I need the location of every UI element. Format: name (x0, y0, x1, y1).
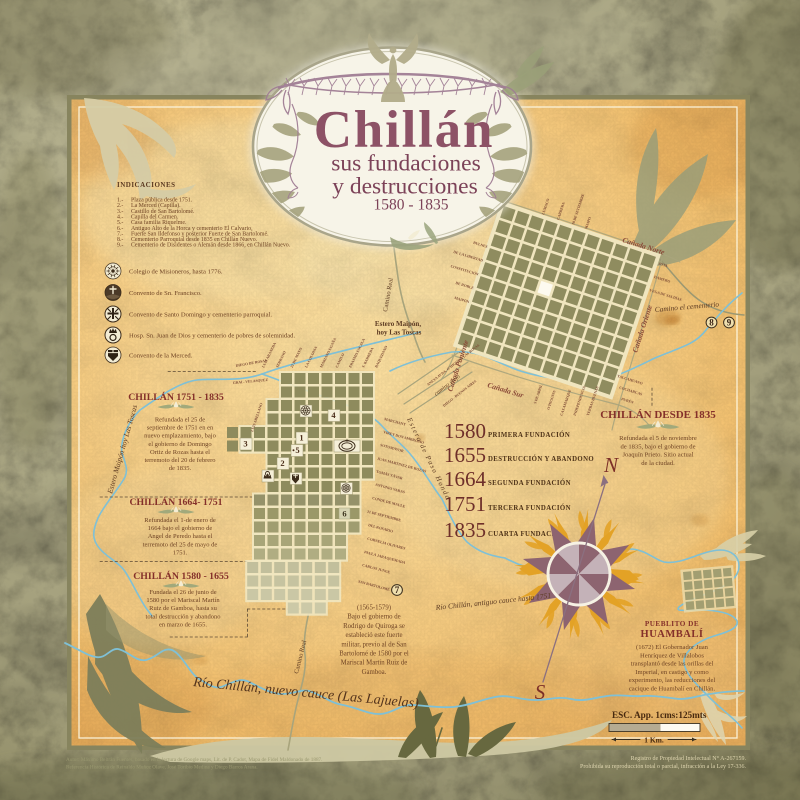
svg-text:en marzo de 1655.: en marzo de 1655. (159, 621, 207, 628)
svg-text:1580: 1580 (444, 419, 486, 443)
svg-text:CHILLÁN 1664- 1751: CHILLÁN 1664- 1751 (129, 496, 222, 508)
svg-text:militar, previo al de San: militar, previo al de San (341, 641, 407, 648)
svg-text:1664: 1664 (444, 467, 487, 491)
svg-text:1664 bajo el gobierno de: 1664 bajo el gobierno de (148, 525, 213, 532)
svg-text:Convento de la Merced.: Convento de la Merced. (129, 352, 193, 359)
svg-text:Estero Maipón,: Estero Maipón, (375, 320, 421, 328)
svg-text:Convento de Santo Domingo y ce: Convento de Santo Domingo y cementerio p… (129, 311, 272, 318)
svg-text:Gamboa.: Gamboa. (362, 669, 387, 676)
svg-text:INDICACIONES: INDICACIONES (117, 181, 176, 189)
svg-text:experimento, las reducciones d: experimento, las reducciones del (629, 677, 716, 684)
svg-text:septiembre de 1751 en en: septiembre de 1751 en en (147, 425, 214, 432)
svg-text:Angel de Peredo hasta el: Angel de Peredo hasta el (148, 533, 213, 540)
svg-text:PRIMERA FUNDACIÓN: PRIMERA FUNDACIÓN (488, 431, 570, 439)
svg-text:Ortiz de Rozas hasta el: Ortiz de Rozas hasta el (150, 449, 210, 456)
svg-text:N: N (603, 453, 619, 477)
svg-text:estableció este fuerte: estableció este fuerte (346, 632, 403, 639)
svg-text:Colegio de Misioneros, hasta 1: Colegio de Misioneros, hasta 1776. (129, 268, 223, 275)
svg-text:Cementerio de Disidentes o Ale: Cementerio de Disidentes o Alemán desde … (131, 243, 291, 249)
svg-text:1835: 1835 (444, 518, 486, 542)
svg-text:5: 5 (295, 445, 299, 455)
svg-text:ESC. App. 1cms:125mts: ESC. App. 1cms:125mts (612, 710, 707, 720)
svg-text:1: 1 (299, 433, 303, 443)
svg-text:1 Km.: 1 Km. (644, 736, 664, 745)
svg-text:de 1835, bajo el gobierno de: de 1835, bajo el gobierno de (620, 443, 695, 450)
svg-text:Referencia Histórica de Reinal: Referencia Histórica de Reinaldo Muñoz O… (66, 764, 258, 771)
svg-text:Registro de Propiedad Intelect: Registro de Propiedad Intelectual N° A-2… (631, 755, 747, 762)
svg-text:Refundada el 25 de: Refundada el 25 de (155, 417, 205, 424)
svg-text:(1565-1579): (1565-1579) (357, 605, 391, 612)
svg-text:Bartolomé de 1580 por el: Bartolomé de 1580 por el (339, 651, 409, 658)
svg-text:de la ciudad.: de la ciudad. (641, 460, 675, 467)
svg-text:Henríquez de Villalobos: Henríquez de Villalobos (640, 652, 704, 659)
svg-text:nuevo emplazamiento, bajo: nuevo emplazamiento, bajo (144, 433, 216, 440)
svg-text:(1672) El Gobernador Juan: (1672) El Gobernador Juan (636, 644, 709, 651)
svg-text:de 1835.: de 1835. (169, 465, 192, 472)
svg-text:HUAMBALÍ: HUAMBALÍ (641, 628, 704, 640)
svg-text:PUEBLITO DE: PUEBLITO DE (645, 620, 699, 628)
svg-text:8: 8 (709, 318, 714, 328)
svg-text:Fundada el 26 de junio de: Fundada el 26 de junio de (149, 589, 216, 596)
svg-text:terremoto del 20 de febrero: terremoto del 20 de febrero (144, 457, 215, 464)
svg-text:Prohibida su reproducción tota: Prohibida su reproducción total o parcia… (580, 763, 746, 770)
svg-text:1655: 1655 (444, 443, 486, 467)
svg-text:DESTRUCCIÓN Y ABANDONO: DESTRUCCIÓN Y ABANDONO (488, 455, 594, 463)
svg-text:cacique de Huambalí en Chillán: cacique de Huambalí en Chillán. (629, 686, 716, 693)
svg-text:CHILLÁN DESDE 1835: CHILLÁN DESDE 1835 (600, 409, 716, 421)
svg-text:9: 9 (727, 318, 732, 328)
svg-text:1580 - 1835: 1580 - 1835 (374, 197, 449, 214)
svg-text:1580 por el Mariscal Martín: 1580 por el Mariscal Martín (146, 597, 220, 604)
svg-text:CHILLÁN 1751 - 1835: CHILLÁN 1751 - 1835 (128, 391, 224, 403)
svg-text:Hosp. Sn. Juan de Dios y cemen: Hosp. Sn. Juan de Dios y cementerio de p… (129, 332, 295, 339)
svg-text:9.-: 9.- (117, 243, 123, 249)
svg-text:Joaquín Prieto. Sitio actual: Joaquín Prieto. Sitio actual (622, 452, 693, 459)
svg-text:Convento de Sn. Francisco.: Convento de Sn. Francisco. (129, 290, 202, 297)
svg-text:6: 6 (342, 509, 346, 519)
svg-text:S: S (535, 680, 546, 704)
svg-text:Refundada el 5 de noviembre: Refundada el 5 de noviembre (619, 435, 697, 442)
svg-text:hoy Las Toscas: hoy Las Toscas (377, 329, 422, 337)
svg-text:Ruiz de Gamboa, hasta su: Ruiz de Gamboa, hasta su (149, 605, 217, 612)
svg-text:7: 7 (395, 585, 400, 595)
svg-text:CHILLÁN 1580 - 1655: CHILLÁN 1580 - 1655 (133, 570, 229, 582)
svg-text:terremoto del 25 de mayo de: terremoto del 25 de mayo de (143, 541, 218, 548)
svg-text:Bajo el gobierno de: Bajo el gobierno de (347, 614, 400, 621)
svg-text:total destrucción y abandono: total destrucción y abandono (146, 613, 221, 620)
svg-text:el gobierno de Domingo: el gobierno de Domingo (148, 441, 211, 448)
svg-text:transplantó desde las orillas: transplantó desde las orillas del (631, 661, 714, 668)
svg-text:Refundada el 1-de enero de: Refundada el 1-de enero de (144, 517, 216, 524)
svg-text:Rodrigo de Quiroga se: Rodrigo de Quiroga se (343, 623, 405, 630)
svg-text:1751.: 1751. (173, 549, 188, 556)
svg-text:Mariscal Martín Ruiz de: Mariscal Martín Ruiz de (341, 660, 408, 667)
svg-text:SEGUNDA FUNDACIÓN: SEGUNDA FUNDACIÓN (488, 479, 571, 487)
svg-text:Imperial, en castigo y como: Imperial, en castigo y como (635, 669, 709, 676)
svg-text:Autor: Máximo Beltrán Fuentes,: Autor: Máximo Beltrán Fuentes, basado en… (66, 757, 322, 763)
svg-text:3: 3 (243, 439, 247, 449)
svg-text:2: 2 (280, 458, 284, 468)
svg-text:TERCERA FUNDACIÓN: TERCERA FUNDACIÓN (488, 504, 571, 512)
